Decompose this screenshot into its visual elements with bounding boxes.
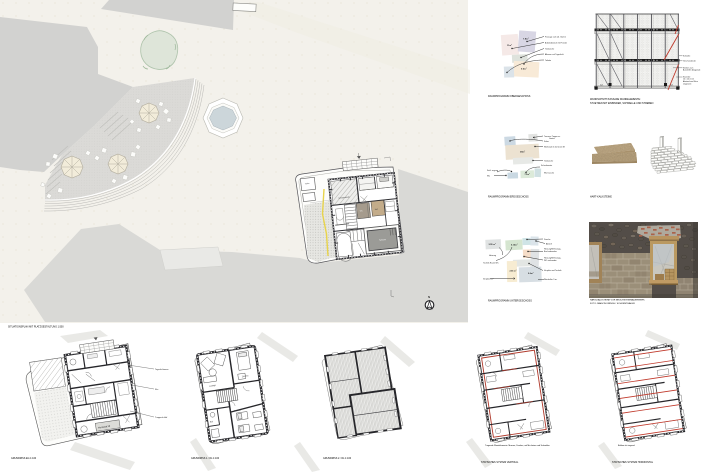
- svg-text:RAUMPROGRAMM UNTERGESCHOSS: RAUMPROGRAMM UNTERGESCHOSS: [488, 300, 532, 303]
- svg-text:Vorplatz und Technik: Vorplatz und Technik: [544, 269, 561, 272]
- svg-text:7.8m²: 7.8m²: [523, 38, 529, 41]
- svg-text:GRUNDRISS EG 1:100: GRUNDRISS EG 1:100: [11, 457, 37, 460]
- svg-text:STATISCHES SYSTEM HORIZONTAL: STATISCHES SYSTEM HORIZONTAL: [612, 461, 654, 464]
- svg-text:Flur: Flur: [155, 389, 159, 391]
- svg-text:WANDSCHNITT/FASSADE WANDELEMEN: WANDSCHNITT/FASSADE WANDELEMENTE:: [590, 98, 641, 101]
- svg-text:Geschossdecke: Geschossdecke: [683, 60, 696, 62]
- svg-text:Garten: Garten: [549, 137, 555, 140]
- svg-text:2.55 m²: 2.55 m²: [510, 270, 517, 273]
- svg-text:N: N: [428, 295, 430, 299]
- svg-text:HART-KALKSTEINE VOR BRUCHSTEIN: HART-KALKSTEINE VOR BRUCHSTEINMAUERWERK: [590, 299, 645, 302]
- svg-text:Heizung: Heizung: [489, 255, 496, 257]
- svg-text:STATISCHES SYSTEM VERTIKAL: STATISCHES SYSTEM VERTIKAL: [481, 461, 519, 464]
- svg-text:Balken als tragend: Balken als tragend: [618, 444, 635, 447]
- svg-text:Dusche: Dusche: [544, 239, 550, 241]
- svg-text:38m²: 38m²: [520, 151, 525, 154]
- svg-text:Schwelle: Schwelle: [683, 55, 690, 57]
- svg-text:Tageslichtraum: Tageslichtraum: [155, 368, 169, 371]
- svg-text:11m²: 11m²: [507, 44, 512, 47]
- svg-text:Vorplatz ca?: Vorplatz ca?: [483, 277, 493, 280]
- svg-text:Toilette: Toilette: [545, 59, 551, 62]
- svg-text:Technik Raum WC: Technik Raum WC: [483, 263, 499, 265]
- svg-text:GRUNDRISS 2. OG 1:100: GRUNDRISS 2. OG 1:100: [323, 457, 352, 460]
- svg-text:FOTO: MAISON KRINGS / SCHOENTH: FOTO: MAISON KRINGS / SCHOENTHALER: [590, 302, 635, 305]
- svg-text:Tragende Wandelemente: Maeuer,: Tragende Wandelemente: Maeuer, Daeken, m…: [485, 444, 550, 447]
- svg-text:4x4: 4x4: [600, 85, 603, 87]
- svg-text:3.55 m²: 3.55 m²: [489, 243, 496, 246]
- svg-text:6.15m²: 6.15m²: [511, 244, 518, 247]
- svg-text:Aussteifen (Diagonal): Aussteifen (Diagonal): [683, 69, 701, 72]
- svg-text:Seitl. zugang: Seitl. zugang: [487, 169, 498, 172]
- svg-text:4x4: 4x4: [670, 85, 673, 87]
- svg-text:Arbeitsbereich mit Fenster: Arbeitsbereich mit Fenster: [545, 41, 567, 44]
- svg-text:WC verbunden: WC verbunden: [544, 259, 557, 262]
- svg-text:Salon: Salon: [544, 141, 549, 143]
- svg-text:WC Dusche: WC Dusche: [544, 172, 554, 174]
- svg-text:Bad verbunden: Bad verbunden: [544, 250, 557, 253]
- svg-text:WC: WC: [487, 175, 491, 177]
- svg-text:Bad: Bad: [375, 209, 378, 211]
- svg-text:SITUATIONSPLAN MIT PLATZGESTAL: SITUATIONSPLAN MIT PLATZGESTALTUNG 1:500: [8, 326, 64, 329]
- svg-text:Werkstatt im Zentrum 38: Werkstatt im Zentrum 38: [544, 145, 565, 148]
- svg-text:Abstell: Abstell: [546, 242, 552, 245]
- svg-text:Treppenh.Hof: Treppenh.Hof: [155, 417, 168, 419]
- svg-text:RAUMPROGRAMM ERDGESCHOSS: RAUMPROGRAMM ERDGESCHOSS: [488, 196, 529, 199]
- svg-text:Schaufenster: Schaufenster: [541, 164, 553, 167]
- svg-text:Alkoven mit Tageslicht: Alkoven mit Tageslicht: [545, 53, 564, 56]
- svg-text:Weinkeller 9 m²: Weinkeller 9 m²: [544, 278, 557, 281]
- svg-text:eingesetzt: eingesetzt: [683, 83, 692, 86]
- svg-text:RAUMPROGRAMM OBERGESCHOSS: RAUMPROGRAMM OBERGESCHOSS: [488, 95, 531, 98]
- svg-text:STUETZEN MIT EINBINDER, SCHWEL: STUETZEN MIT EINBINDER, SCHWELLE UND STR…: [590, 102, 654, 105]
- svg-text:9.6m²: 9.6m²: [528, 272, 534, 275]
- svg-text:Passage zum ob. Garten: Passage zum ob. Garten: [545, 35, 566, 38]
- svg-text:HART-KALKSTEINE: HART-KALKSTEINE: [590, 196, 612, 199]
- svg-text:7.5m²: 7.5m²: [525, 173, 531, 176]
- svg-text:9.6m²: 9.6m²: [521, 68, 527, 71]
- svg-text:GRUNDRISS 1. OG 1:100: GRUNDRISS 1. OG 1:100: [191, 457, 220, 460]
- svg-text:Teekueche: Teekueche: [544, 160, 553, 162]
- svg-text:Teekueche: Teekueche: [545, 48, 554, 50]
